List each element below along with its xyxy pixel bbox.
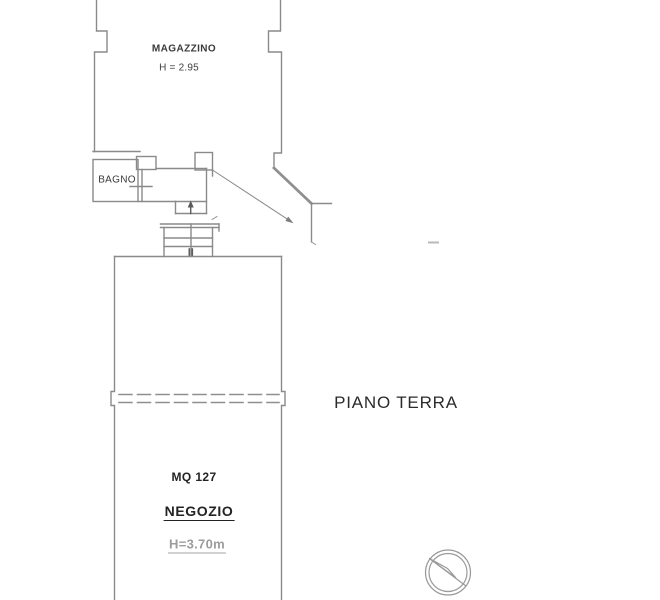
floor-plan-drawing <box>0 0 660 600</box>
north-compass-icon <box>426 550 471 595</box>
floor-title: PIANO TERRA <box>334 393 458 413</box>
negozio-area-label: MQ 127 <box>171 470 216 484</box>
negozio-height-label: H=3.70m <box>168 537 226 554</box>
magazzino-room-walls <box>93 0 282 168</box>
negozio-room-label: NEGOZIO <box>164 503 235 521</box>
magazzino-room-label: MAGAZZINO <box>152 44 216 55</box>
wall-piers <box>137 153 213 171</box>
bagno-room-label: BAGNO <box>98 175 136 186</box>
stairs-lower-flight <box>161 224 220 257</box>
magazzino-height-label: H = 2.95 <box>159 63 199 74</box>
diagonal-wall <box>274 168 332 245</box>
dashed-opening-lines <box>119 395 279 403</box>
floor-plan-canvas: MAGAZZINO H = 2.95 BAGNO MQ 127 NEGOZIO … <box>0 0 660 600</box>
stairs-up-arrow-icon <box>188 201 194 214</box>
leader-arrow <box>212 170 294 223</box>
